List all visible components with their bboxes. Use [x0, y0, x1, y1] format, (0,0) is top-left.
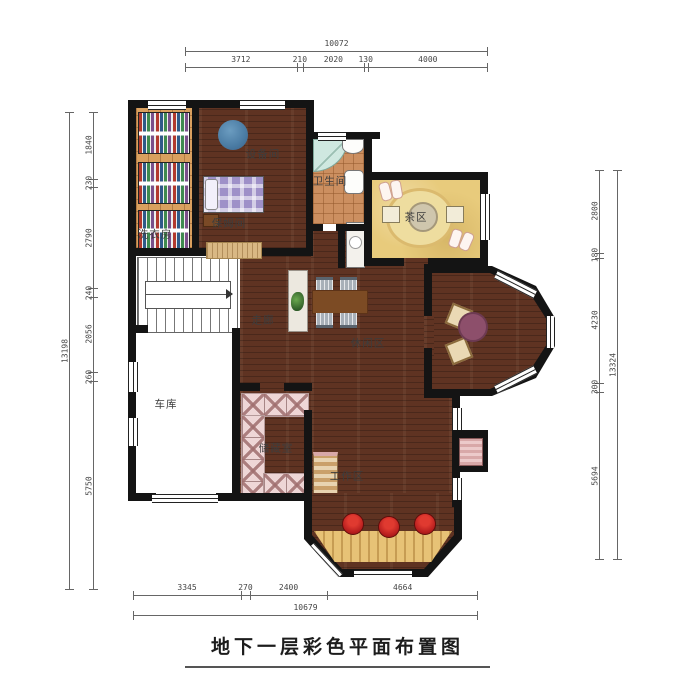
dining-chair: [316, 313, 333, 328]
room-label-storage: 储藏室: [259, 441, 294, 456]
bed-pillow: [205, 179, 218, 210]
chimney-vent: [459, 438, 483, 466]
window: [148, 100, 186, 110]
doorway-mat: [206, 242, 262, 259]
wall: [428, 258, 484, 266]
storage-shelves-left: [241, 415, 265, 497]
staircase: [137, 257, 238, 333]
room-label-tea: 茶区: [405, 210, 428, 225]
wall: [364, 172, 488, 180]
room-label-corridor: 走廊: [252, 313, 275, 328]
stair-direction-arrow: [226, 289, 233, 299]
window: [480, 194, 490, 240]
room-label-garage: 车库: [155, 397, 178, 412]
dim-right-segments: 2800 180 4230 300 5694: [588, 170, 602, 560]
wall: [128, 248, 206, 256]
dim-bottom-total: 10679: [133, 604, 478, 618]
dim-top-total: 10072: [185, 40, 488, 54]
bay-window-glass: [354, 570, 412, 579]
room-label-bathroom: 卫生间: [313, 174, 348, 189]
dining-chair: [340, 313, 357, 328]
room-label-work: 工作区: [330, 469, 365, 484]
tea-seat: [382, 206, 400, 223]
potted-plant-icon: [291, 292, 304, 311]
bathroom-sink: [342, 139, 364, 154]
stair-rail: [145, 281, 231, 309]
water-tank-icon: [218, 120, 248, 150]
wall: [192, 108, 199, 252]
room-label-nanny: 保姆间: [212, 216, 247, 231]
wall: [364, 258, 404, 266]
window: [318, 132, 346, 141]
bay-window-glass: [546, 316, 555, 348]
tea-seat: [446, 206, 464, 223]
window: [128, 418, 138, 446]
wall: [232, 328, 240, 501]
wall: [338, 224, 345, 268]
red-stool: [378, 516, 400, 538]
dim-top-segments: 3712 210 2020 130 4000: [185, 56, 488, 70]
wall: [232, 383, 260, 391]
red-stool: [342, 513, 364, 535]
bottom-bay-window: [298, 493, 468, 580]
laundry-shelf-unit: [138, 112, 190, 154]
wall: [424, 264, 432, 316]
bay-floor: [424, 260, 560, 402]
wall: [306, 132, 313, 256]
laundry-shelf-unit: [138, 162, 190, 204]
red-stool: [414, 513, 436, 535]
bay-round-table: [458, 312, 488, 342]
vanity-basin: [349, 236, 362, 249]
garage-door: [152, 494, 218, 503]
room-label-laundry: 洗衣房: [138, 227, 173, 242]
floor-plan-canvas: 洗衣房 设备间 卫生间 茶区 保姆间 走廊 休闲区 车库 储藏室 工作区 100…: [0, 0, 683, 680]
wall: [216, 493, 312, 501]
window: [452, 408, 462, 430]
drawing-title: 地下一层彩色平面布置图: [185, 632, 490, 668]
room-label-leisure: 休闲区: [351, 336, 386, 351]
room-label-equipment: 设备间: [246, 147, 281, 162]
wall: [128, 325, 148, 333]
dining-table: [312, 290, 368, 314]
dim-right-total: 13324: [606, 170, 620, 560]
wall: [284, 383, 312, 391]
wall: [364, 132, 372, 264]
storage-shelves-top: [241, 393, 309, 417]
wall: [313, 224, 323, 231]
wall: [304, 410, 312, 501]
window: [240, 100, 285, 110]
stair-rail-line: [145, 294, 229, 295]
dim-left-total: 13198: [58, 112, 72, 590]
dim-bottom-segments: 3345 270 2400 4664: [133, 584, 478, 598]
octagonal-bay-window: [424, 260, 560, 402]
window: [128, 362, 138, 392]
window: [452, 478, 462, 500]
dim-left-segments: 1840 230 2790 240 2056 260 5750: [82, 112, 96, 590]
